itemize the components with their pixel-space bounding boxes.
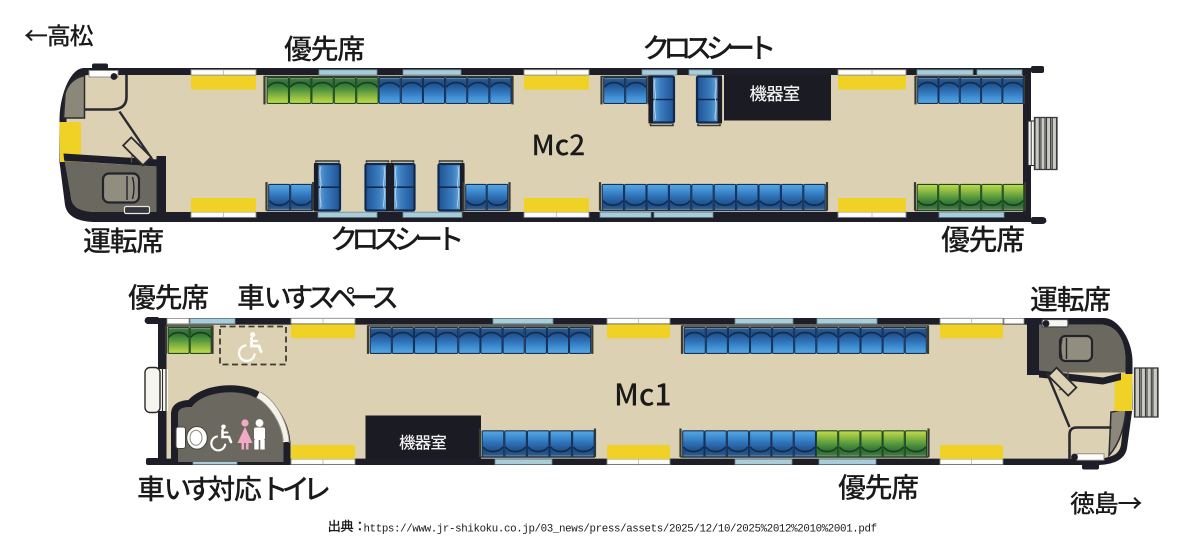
svg-text:https://www.jr-shikoku.co.jp/0: https://www.jr-shikoku.co.jp/03_news/pre… [364, 524, 877, 536]
